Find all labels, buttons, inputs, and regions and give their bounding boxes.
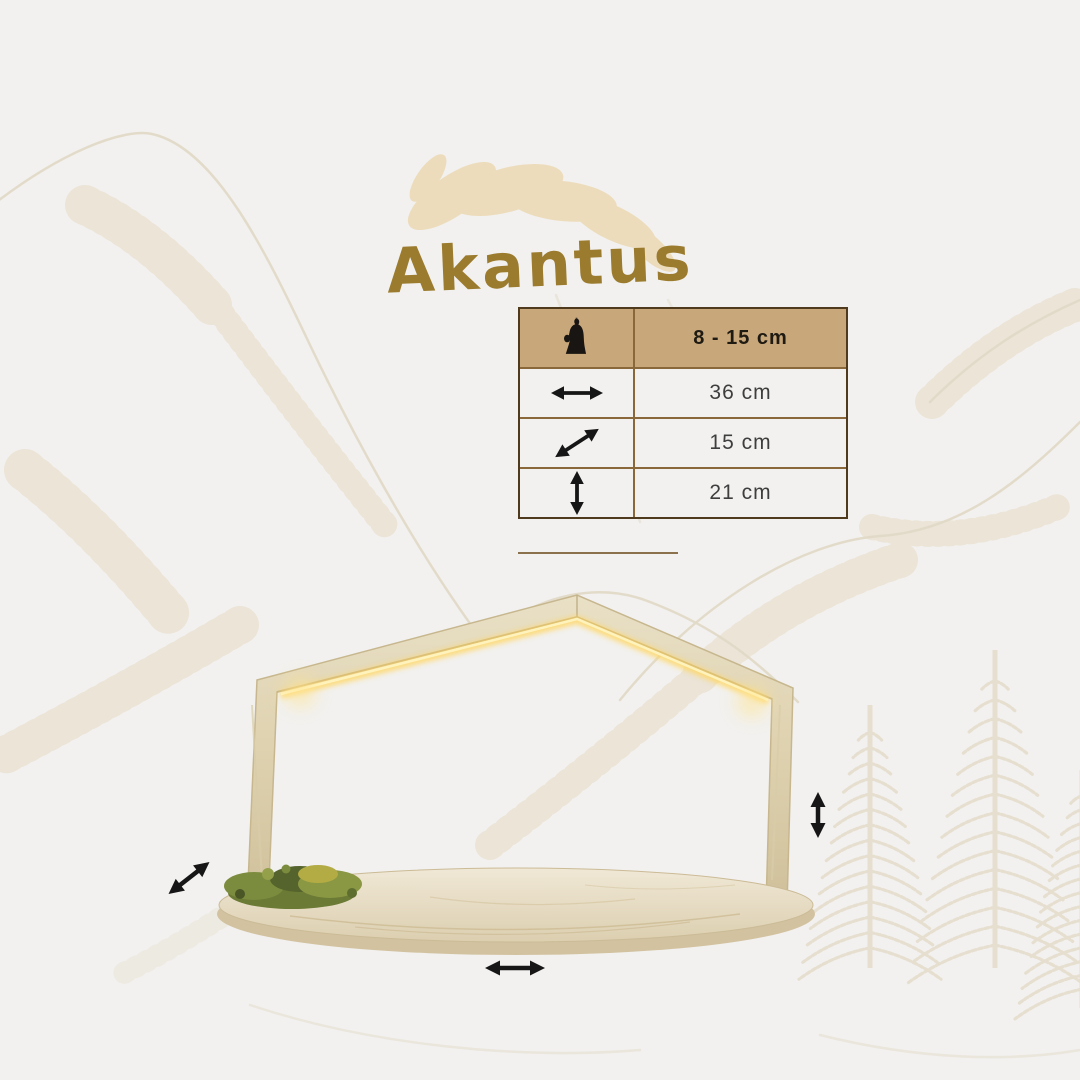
- divider-line: [518, 552, 678, 554]
- height-value-cell: 21 cm: [633, 467, 846, 517]
- width-value: 36 cm: [709, 381, 771, 405]
- width-icon-cell: [520, 367, 633, 417]
- figure-size-value: 8 - 15 cm: [693, 327, 788, 350]
- vertical-arrow-icon: [811, 792, 826, 838]
- vertical-arrow-icon: [564, 470, 590, 516]
- pine-trees-sketch: [799, 650, 1080, 1019]
- depth-value: 15 cm: [709, 431, 771, 455]
- nativity-figure-icon: [561, 316, 593, 360]
- figure-size-icon-cell: [520, 309, 633, 367]
- wooden-frame: [247, 595, 793, 906]
- diagonal-arrow-icon: [551, 422, 603, 464]
- moss-decoration: [224, 865, 362, 910]
- diagonal-arrow-icon: [164, 856, 214, 900]
- height-value: 21 cm: [709, 481, 771, 505]
- horizontal-arrow-icon: [549, 380, 605, 406]
- dimensions-table: 8 - 15 cm 36 cm 15 cm: [518, 307, 848, 519]
- pine-tree-icon: [908, 650, 1080, 983]
- infographic-canvas: Akantus 8 - 15 cm 36 cm: [0, 0, 1080, 1080]
- width-value-cell: 36 cm: [633, 367, 846, 417]
- pine-tree-icon: [1015, 770, 1080, 1019]
- height-icon-cell: [520, 467, 633, 517]
- depth-icon-cell: [520, 417, 633, 467]
- depth-value-cell: 15 cm: [633, 417, 846, 467]
- horizontal-arrow-icon: [485, 961, 545, 976]
- figure-size-value-cell: 8 - 15 cm: [633, 309, 846, 367]
- background-artwork: [0, 0, 1080, 1080]
